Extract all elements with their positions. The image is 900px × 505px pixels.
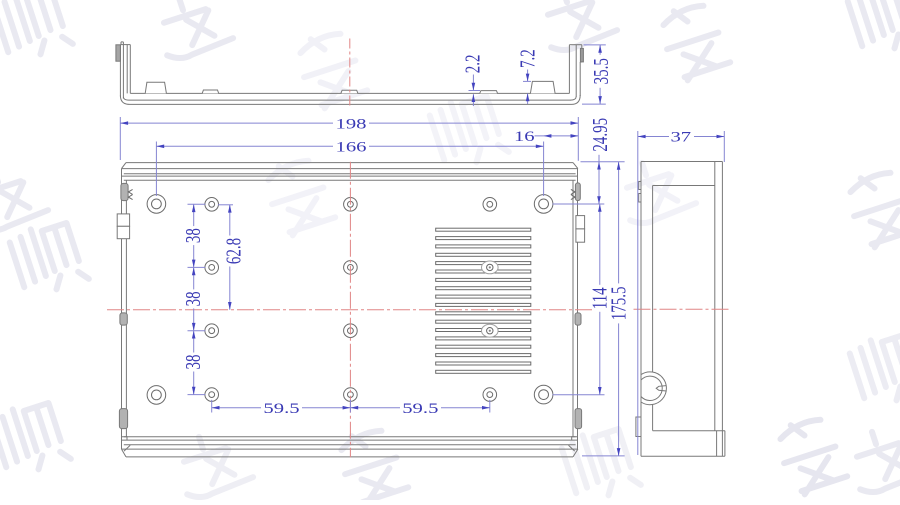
svg-text:175.5: 175.5 bbox=[607, 287, 630, 321]
svg-text:62.8: 62.8 bbox=[222, 238, 245, 264]
svg-text:7.2: 7.2 bbox=[516, 49, 539, 68]
svg-text:38: 38 bbox=[181, 291, 204, 306]
svg-text:166: 166 bbox=[335, 138, 366, 155]
svg-text:37: 37 bbox=[670, 128, 691, 145]
svg-text:38: 38 bbox=[181, 355, 204, 370]
svg-text:38: 38 bbox=[181, 228, 204, 243]
svg-text:35.5: 35.5 bbox=[590, 58, 613, 84]
svg-text:2.2: 2.2 bbox=[461, 55, 484, 74]
svg-text:16: 16 bbox=[514, 128, 535, 145]
svg-text:59.5: 59.5 bbox=[263, 400, 299, 417]
svg-text:198: 198 bbox=[335, 115, 366, 132]
svg-text:24.95: 24.95 bbox=[589, 118, 612, 152]
svg-text:59.5: 59.5 bbox=[402, 400, 438, 417]
